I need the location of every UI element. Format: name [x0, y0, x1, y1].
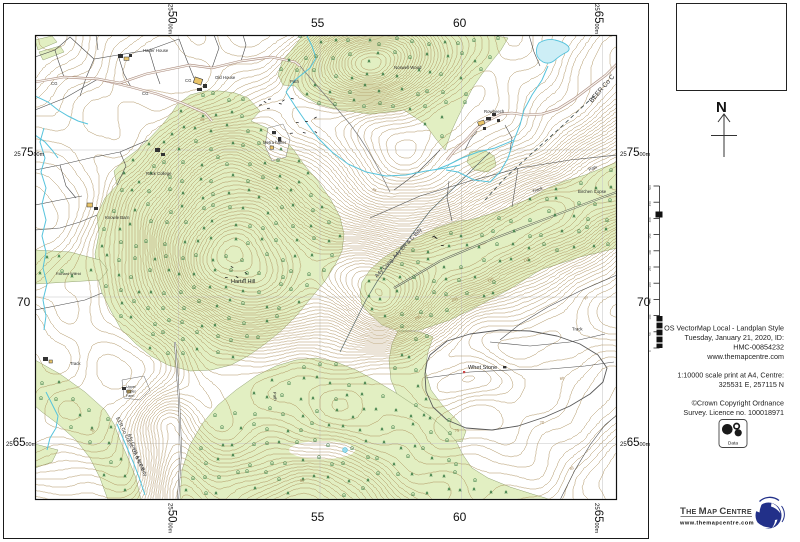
svg-text:Data: Data	[728, 441, 738, 447]
svg-text:Richard Wilfrid: Richard Wilfrid	[56, 272, 81, 276]
svg-text:70: 70	[17, 295, 31, 309]
svg-text:Knowle Barn: Knowle Barn	[105, 215, 130, 220]
svg-text:N: N	[716, 99, 727, 116]
svg-text:150: 150	[648, 298, 652, 303]
svg-text:Rowbeech: Rowbeech	[484, 109, 505, 114]
svg-text:55: 55	[311, 510, 325, 524]
svg-text:Old House: Old House	[215, 75, 236, 80]
svg-text:100: 100	[648, 314, 652, 319]
svg-text:256500m: 256500m	[592, 503, 604, 534]
svg-text:©Crown Copyright Ordnance: ©Crown Copyright Ordnance	[692, 399, 784, 408]
svg-text:www.themapcentre.com: www.themapcentre.com	[679, 521, 754, 527]
svg-text:Track: Track	[572, 327, 583, 332]
svg-text:400: 400	[648, 217, 652, 222]
svg-text:Birchen Copse: Birchen Copse	[578, 189, 607, 194]
svg-text:255000m: 255000m	[166, 4, 178, 35]
svg-text:80: 80	[300, 479, 305, 483]
svg-text:CG: CG	[51, 81, 58, 86]
svg-text:256500m: 256500m	[6, 437, 37, 449]
svg-text:Tuesday, January 21, 2020, ID:: Tuesday, January 21, 2020, ID:	[685, 333, 784, 342]
svg-text:256500m: 256500m	[592, 4, 604, 35]
svg-text:325531 E, 257115 N: 325531 E, 257115 N	[719, 380, 784, 389]
svg-text:Noswell Wood: Noswell Wood	[394, 65, 422, 70]
svg-text:Path: Path	[290, 79, 299, 84]
svg-text:Hartel Hill: Hartel Hill	[231, 279, 255, 285]
svg-text:Survey. Licence no. 100018971: Survey. Licence no. 100018971	[683, 408, 784, 417]
svg-text:60: 60	[453, 16, 467, 30]
svg-text:450: 450	[648, 201, 652, 206]
svg-text:255000m: 255000m	[166, 503, 178, 534]
svg-text:Farm: Farm	[126, 394, 134, 398]
svg-text:OS VectorMap Local - Landplan: OS VectorMap Local - Landplan Style	[664, 324, 784, 333]
svg-text:70: 70	[540, 420, 545, 425]
svg-text:Track: Track	[70, 361, 81, 366]
svg-text:350: 350	[648, 233, 652, 238]
svg-text:55: 55	[311, 16, 325, 30]
svg-text:CG: CG	[185, 78, 192, 83]
svg-text:256500m: 256500m	[620, 437, 651, 449]
svg-text:50: 50	[648, 332, 652, 336]
svg-text:250: 250	[648, 266, 652, 271]
svg-text:Upper: Upper	[126, 385, 137, 389]
svg-text:257500m: 257500m	[620, 147, 651, 159]
svg-text:Whet Stone: Whet Stone	[468, 365, 497, 371]
svg-text:500: 500	[648, 185, 652, 190]
svg-text:Harler House: Harler House	[143, 48, 169, 53]
svg-text:75: 75	[455, 428, 460, 433]
svg-text:300: 300	[648, 249, 652, 254]
svg-text:Harler: Harler	[126, 390, 137, 394]
svg-text:www.themapcentre.com: www.themapcentre.com	[706, 352, 784, 361]
svg-text:HMC-00854232: HMC-00854232	[733, 343, 784, 352]
svg-text:90: 90	[330, 97, 335, 102]
svg-text:Rock College: Rock College	[146, 171, 172, 176]
svg-text:80: 80	[559, 376, 564, 381]
svg-text:THE MAP CENTRE: THE MAP CENTRE	[680, 506, 752, 517]
svg-text:Metra harler: Metra harler	[263, 140, 287, 145]
svg-text:60: 60	[453, 510, 467, 524]
svg-text:1:10000 scale print at A4, Cen: 1:10000 scale print at A4, Centre:	[677, 371, 784, 380]
svg-text:200: 200	[648, 282, 652, 287]
svg-text:CG: CG	[142, 91, 149, 96]
